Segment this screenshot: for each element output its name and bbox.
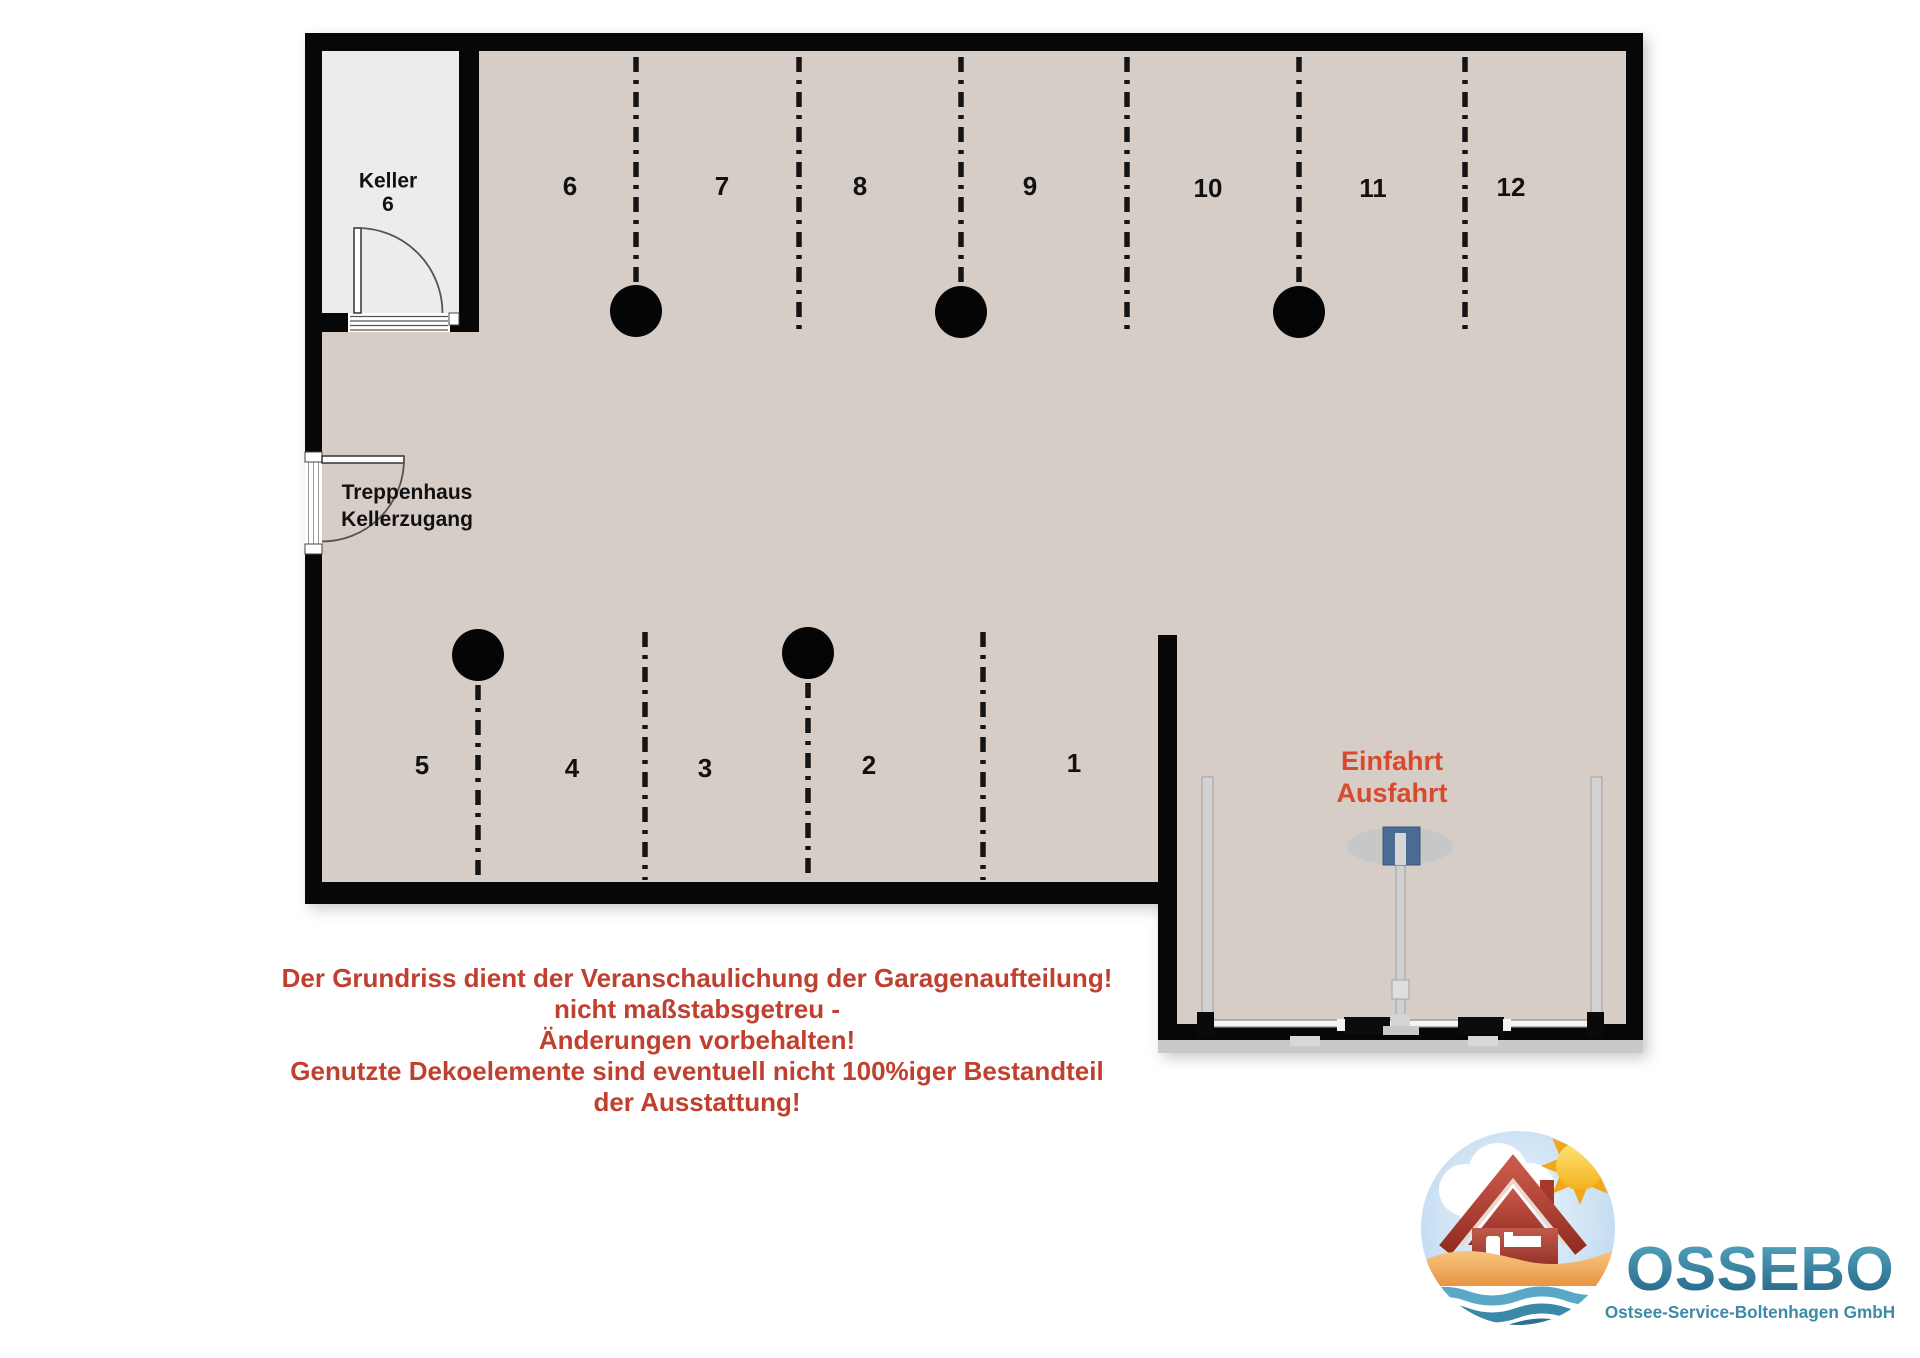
pillar xyxy=(610,285,662,337)
pillar xyxy=(452,629,504,681)
pillar xyxy=(782,627,834,679)
space-label-10: 10 xyxy=(1194,173,1223,203)
space-label-4: 4 xyxy=(565,753,580,783)
space-label-5: 5 xyxy=(415,750,429,780)
space-label-7: 7 xyxy=(715,171,729,201)
space-label-6: 6 xyxy=(563,171,577,201)
stairwell-door-opening xyxy=(305,452,322,554)
keller-label-line2: 6 xyxy=(382,193,394,216)
stairwell-label-line1: Treppenhaus xyxy=(342,481,473,504)
gate-rail-stem xyxy=(1391,1014,1410,1028)
gate-tick-left xyxy=(1290,1036,1320,1046)
stairwell-label-line2: Kellerzugang xyxy=(341,508,473,531)
gate-rail-connector xyxy=(1392,980,1409,999)
keller-door-leaf xyxy=(354,228,361,313)
space-label-8: 8 xyxy=(853,171,867,201)
wall-inner-vertical xyxy=(1158,635,1177,1048)
gate-tick-right xyxy=(1468,1036,1498,1046)
gate-segment-cap-left xyxy=(1337,1019,1345,1031)
floor-plan: Keller 6 Treppenhaus Kellerzugang 6 7 8 … xyxy=(305,33,1643,1053)
floor-plan-svg: Keller 6 Treppenhaus Kellerzugang 6 7 8 … xyxy=(0,0,1920,1358)
pillar xyxy=(1273,286,1325,338)
entrance-label-line2: Ausfahrt xyxy=(1336,778,1447,808)
logo-house-window-tab xyxy=(1504,1232,1513,1247)
wall-bottom-main xyxy=(305,882,1176,904)
space-label-9: 9 xyxy=(1023,171,1037,201)
gate-rail-foot-left xyxy=(1197,1012,1214,1037)
logo-name: OSSEBO xyxy=(1626,1235,1894,1304)
gate-rail-right xyxy=(1591,777,1602,1029)
floorplan-canvas: Keller 6 Treppenhaus Kellerzugang 6 7 8 … xyxy=(0,0,1920,1358)
company-logo: OSSEBO Ostsee-Service-Boltenhagen GmbH xyxy=(1417,1127,1895,1333)
gate-rail-base xyxy=(1383,1026,1419,1035)
stairwell-door-leaf xyxy=(322,456,404,463)
space-label-12: 12 xyxy=(1497,172,1526,202)
gate-rail-foot-right xyxy=(1587,1012,1604,1037)
logo-wave-icon xyxy=(1417,1292,1623,1334)
gate-outer-strip xyxy=(1158,1040,1643,1053)
space-label-1: 1 xyxy=(1067,748,1081,778)
space-label-11: 11 xyxy=(1359,173,1387,203)
pillar xyxy=(935,286,987,338)
disclaimer-line: Der Grundriss dient der Veranschaulichun… xyxy=(282,963,1113,993)
keller-wall-right xyxy=(459,33,479,332)
gate-segment-cap-right xyxy=(1503,1019,1511,1031)
disclaimer-line: der Ausstattung! xyxy=(593,1087,800,1117)
disclaimer: Der Grundriss dient der Veranschaulichun… xyxy=(282,963,1113,1117)
disclaimer-line: Genutzte Dekoelemente sind eventuell nic… xyxy=(290,1056,1103,1086)
wall-right xyxy=(1626,33,1643,1048)
space-label-3: 3 xyxy=(698,753,712,783)
keller-label-line1: Keller xyxy=(359,170,417,193)
logo-subtitle: Ostsee-Service-Boltenhagen GmbH xyxy=(1605,1302,1895,1322)
gate-motor-slot xyxy=(1395,833,1406,865)
logo-emblem xyxy=(1417,1127,1623,1333)
wall-top xyxy=(305,33,1643,51)
gate-segment-right xyxy=(1458,1017,1504,1034)
gate-rail-left xyxy=(1202,777,1213,1029)
keller-door-threshold xyxy=(348,313,459,332)
space-label-2: 2 xyxy=(862,750,876,780)
entrance-label-line1: Einfahrt xyxy=(1341,746,1443,776)
disclaimer-line: Änderungen vorbehalten! xyxy=(539,1025,855,1055)
disclaimer-line: nicht maßstabsgetreu - xyxy=(554,994,840,1024)
